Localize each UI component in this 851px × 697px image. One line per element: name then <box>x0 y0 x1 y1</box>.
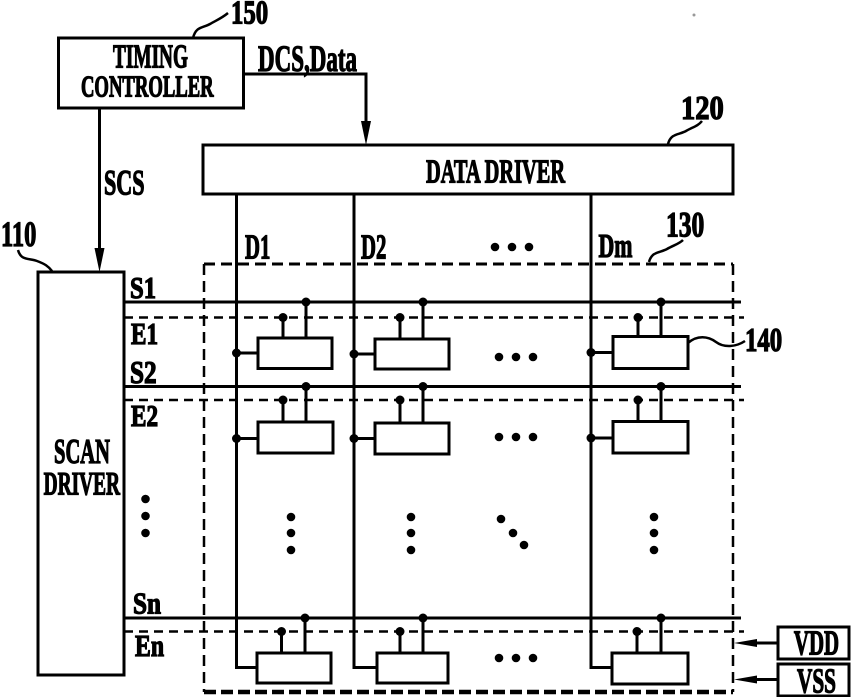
svg-text:DCS,Data: DCS,Data <box>258 37 357 79</box>
svg-text:Dm: Dm <box>599 229 633 266</box>
svg-text:Sn: Sn <box>133 587 161 621</box>
svg-text:En: En <box>135 628 164 663</box>
svg-text:DATA DRIVER: DATA DRIVER <box>426 153 566 191</box>
svg-text:SCS: SCS <box>104 163 145 203</box>
svg-text:S2: S2 <box>130 356 157 390</box>
svg-text:S1: S1 <box>130 271 156 305</box>
svg-text:E2: E2 <box>131 399 158 433</box>
svg-text:CONTROLLER: CONTROLLER <box>81 71 214 104</box>
svg-text:DRIVER: DRIVER <box>44 466 121 502</box>
svg-text:120: 120 <box>681 89 724 127</box>
svg-text:TIMING: TIMING <box>113 38 188 75</box>
svg-text:VDD: VDD <box>794 624 839 663</box>
svg-text:150: 150 <box>231 0 268 31</box>
svg-text:130: 130 <box>666 204 704 244</box>
svg-text:140: 140 <box>745 321 782 359</box>
svg-text:D2: D2 <box>361 229 386 267</box>
svg-text:VSS: VSS <box>797 662 836 697</box>
svg-text:110: 110 <box>1 214 36 254</box>
svg-text:D1: D1 <box>245 229 270 267</box>
svg-text:E1: E1 <box>131 317 158 351</box>
